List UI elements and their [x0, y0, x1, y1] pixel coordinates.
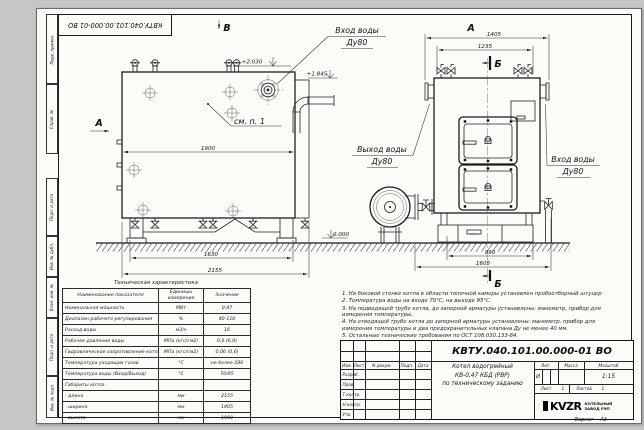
row-name: Номинальная мощность	[63, 303, 159, 314]
row-name: Температура воды (Вход/Выход)	[63, 369, 159, 380]
table-row: Номинальная мощностьМВт0,47	[63, 303, 251, 314]
margin-box-vzam-inv: Взам. инв. №	[46, 277, 58, 318]
table-row: Диапазон рабочего регулирования%40-110	[63, 314, 251, 325]
table-row: Температура воды (Вход/Выход)°С70/95	[63, 369, 251, 380]
margin-box-inv-podl: Инв. № подл.	[46, 376, 58, 418]
margin-label: Подп. и дата	[50, 333, 55, 360]
sheet-label: Лист	[537, 384, 555, 393]
row-value: 16	[204, 325, 251, 336]
row-value: 70/95	[204, 369, 251, 380]
table-row: Гидравлическое сопротивление котлаМПа (к…	[63, 347, 251, 358]
note-item: 4. На отводящей трубе котла до запорной …	[342, 319, 616, 332]
margin-box-podp-data-2: Подп. и дата	[46, 318, 58, 376]
table-row: Рабочее давление водыМПа (кгс/см2)0,6 (6…	[63, 336, 251, 347]
col-ndokum: N докум.	[365, 361, 399, 369]
row-utv: Утв.	[341, 409, 367, 419]
grid-line	[399, 341, 400, 419]
format-note: ФорматА3	[574, 418, 614, 423]
technical-notes: 1. На боковой стенке котла в области топ…	[342, 291, 616, 340]
col-izm: Изм.	[341, 361, 353, 369]
row-name: Диапазон рабочего регулирования	[63, 314, 159, 325]
row-name: - ширина	[63, 402, 159, 413]
col-header: Значение	[204, 289, 251, 303]
grid-line	[415, 341, 416, 419]
row-value: 2155	[204, 391, 251, 402]
grid-line	[341, 351, 431, 352]
top-designation-text: КВТУ.040.101.00.000-01 ВО	[68, 21, 162, 29]
tech-table-title: Техническая характеристика	[62, 280, 250, 286]
lit-header: Лит.	[534, 361, 558, 369]
product-line: по техническому заданию	[431, 380, 534, 389]
company-name: КОТЕЛЬНЫЙ ЗАВОД РЭП	[584, 401, 612, 412]
row-name: Габариты котла	[63, 380, 159, 391]
grid-line	[569, 384, 570, 393]
row-unit: МПа (кгс/см2)	[159, 347, 204, 358]
title-block: КВТУ.040.101.00.000-01 ВО Изм. Лист N до…	[340, 340, 634, 420]
note-item: 3. На подводящей трубе котла, до запорно…	[342, 306, 616, 319]
note-item: 1. На боковой стенке котла в области топ…	[342, 291, 616, 297]
sheet-value: 1	[559, 384, 567, 393]
row-unit: °С	[159, 369, 204, 380]
company-name-line: ЗАВОД РЭП	[584, 406, 612, 411]
row-value: не более 280	[204, 358, 251, 369]
margin-label: Инв. № подл.	[50, 383, 55, 411]
row-unit: мм	[159, 413, 204, 424]
grid-line	[542, 369, 543, 384]
product-line: Котел водогрейный	[431, 363, 534, 372]
format-label: Формат	[574, 418, 593, 423]
table-row: Температура уходящих газов°Сне более 280	[63, 358, 251, 369]
table-row: Габариты котла	[63, 380, 251, 391]
margin-box-inv-dubl: Инв. № дубл.	[46, 236, 58, 277]
row-name: Рабочее давление воды	[63, 336, 159, 347]
document-designation: КВТУ.040.101.00.000-01 ВО	[431, 341, 633, 361]
margin-label: Взам. инв. №	[50, 284, 55, 311]
row-name: - высота	[63, 413, 159, 424]
col-header: Единицы измерения	[159, 289, 204, 303]
grid-line	[550, 369, 551, 384]
table-row: - ширинамм1405	[63, 402, 251, 413]
row-value: 0,6 (6,0)	[204, 336, 251, 347]
product-title: Котел водогрейный КВ-0,47 КБД (РВР) по т…	[431, 363, 534, 389]
row-value	[204, 380, 251, 391]
col-podp: Подп.	[399, 361, 415, 369]
row-value: 0,47	[204, 303, 251, 314]
row-unit: %	[159, 314, 204, 325]
row-unit: мм	[159, 402, 204, 413]
kvzr-logo-text: KVZR	[550, 400, 581, 413]
format-value: А3	[600, 418, 606, 423]
table-row: - длинамм2155	[63, 391, 251, 402]
note-item: 5. Остальные технические требования по О…	[342, 333, 616, 339]
tech-table: Наименование показателя Единицы измерени…	[62, 288, 251, 424]
lit-value: И	[534, 369, 542, 384]
row-value: 0,06 (0,6)	[204, 347, 251, 358]
margin-box-sprav-no: Справ. №	[46, 84, 58, 154]
col-list: Лист	[353, 361, 365, 369]
row-value: 40-110	[204, 314, 251, 325]
row-unit	[159, 380, 204, 391]
note-item: 2. Температура воды на входе 70°С, на вы…	[342, 298, 616, 304]
row-nkontr: Н.контр.	[341, 399, 367, 409]
scale-value: 1:15	[584, 369, 633, 384]
tech-table-header: Наименование показателя Единицы измерени…	[63, 289, 251, 303]
kvzr-logo-mark	[543, 401, 548, 411]
margin-box-perv-primen: Перв. примен.	[46, 14, 58, 84]
mass-header: Масса	[558, 361, 584, 369]
table-row: Расход водым3/ч16	[63, 325, 251, 336]
row-name: Гидравлическое сопротивление котла	[63, 347, 159, 358]
top-designation-stamp: КВТУ.040.101.00.000-01 ВО	[58, 14, 172, 36]
col-data: Дата	[415, 361, 431, 369]
row-unit: мм	[159, 391, 204, 402]
row-unit: °С	[159, 358, 204, 369]
row-unit: м3/ч	[159, 325, 204, 336]
company-block: KVZR КОТЕЛЬНЫЙ ЗАВОД РЭП	[537, 393, 633, 419]
sheets-label: Листов	[572, 384, 596, 393]
sheets-value: 1	[599, 384, 607, 393]
row-value: 1405	[204, 402, 251, 413]
row-tkontr: Т.контр.	[341, 389, 367, 399]
row-unit: МВт	[159, 303, 204, 314]
row-value: 1900	[204, 413, 251, 424]
scale-header: Масштаб	[584, 361, 633, 369]
row-name: Расход воды	[63, 325, 159, 336]
row-name: - длина	[63, 391, 159, 402]
row-razrab: Разраб.	[341, 369, 367, 379]
col-header: Наименование показателя	[63, 289, 159, 303]
product-line: КВ-0,47 КБД (РВР)	[431, 372, 534, 381]
row-name: Температура уходящих газов	[63, 358, 159, 369]
table-row: - высотамм1900	[63, 413, 251, 424]
margin-label: Справ. №	[50, 109, 55, 128]
margin-label: Инв. № дубл.	[50, 243, 55, 270]
row-prov: Пров.	[341, 379, 367, 389]
margin-box-podp-data-1: Подп. и дата	[46, 178, 58, 236]
margin-label: Подп. и дата	[50, 193, 55, 220]
row-unit: МПа (кгс/см2)	[159, 336, 204, 347]
margin-label: Перв. примен.	[50, 34, 55, 64]
